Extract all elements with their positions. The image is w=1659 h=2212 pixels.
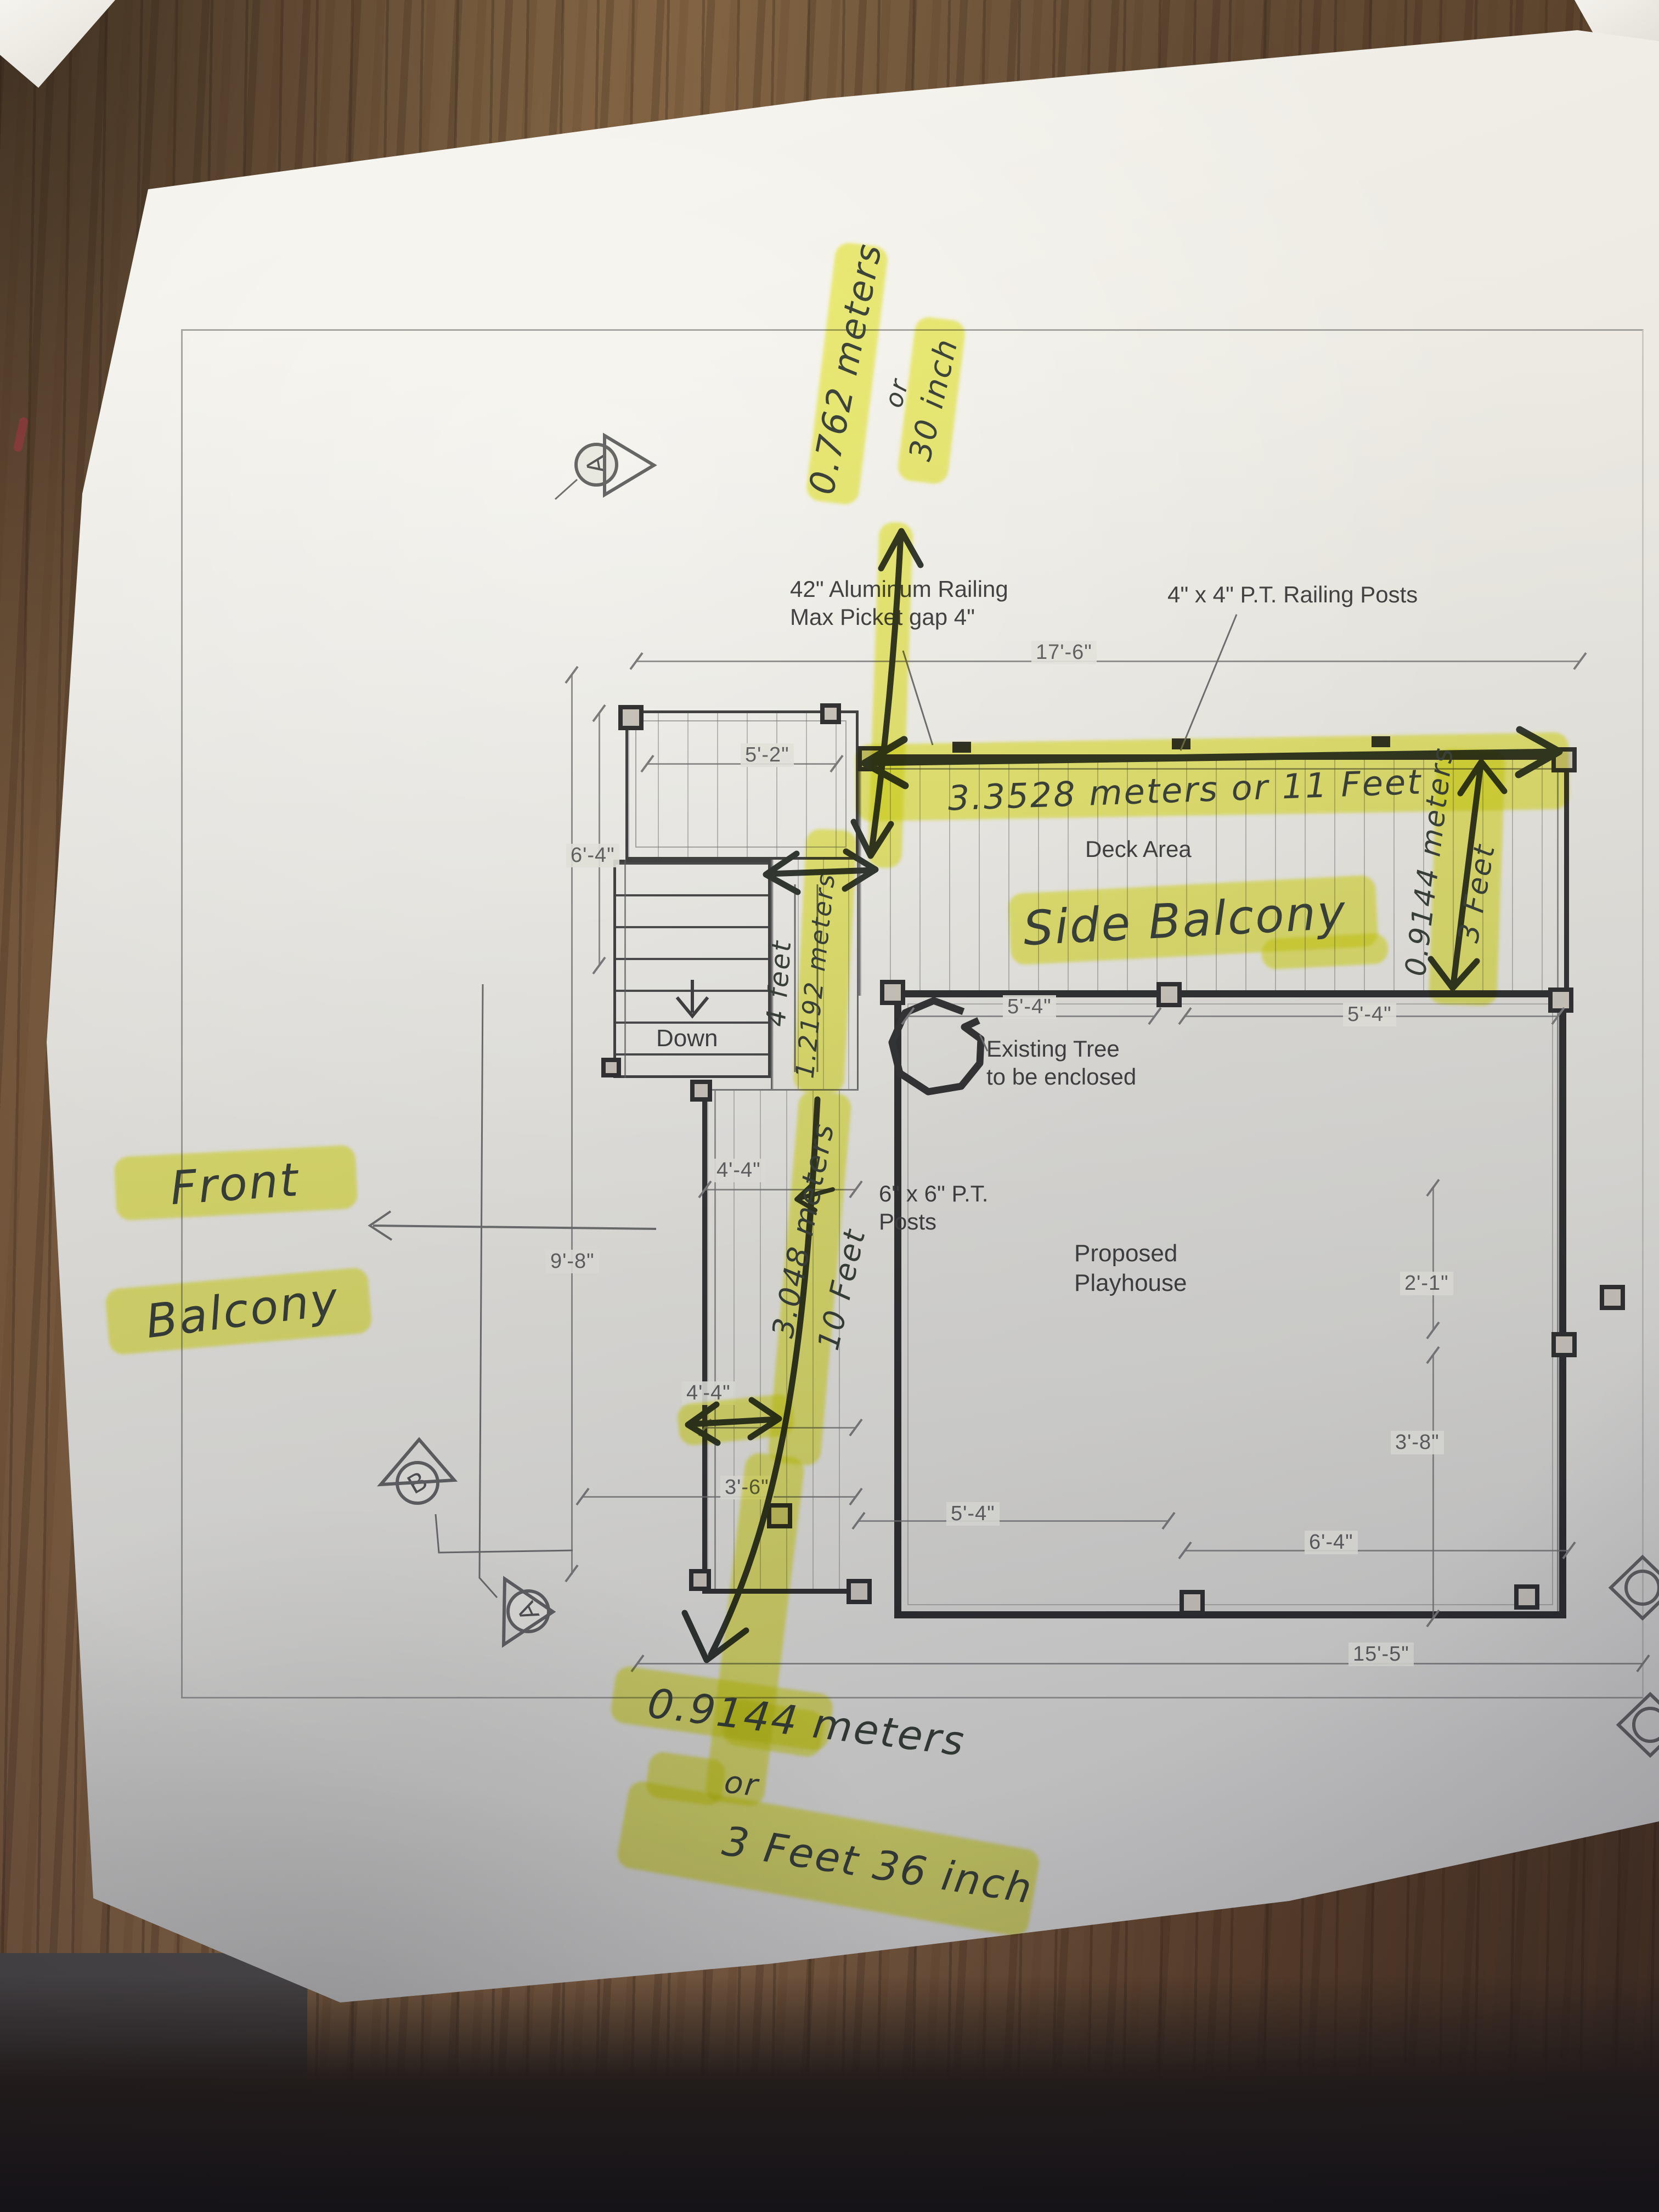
- existing-tree-outline: [892, 1001, 981, 1092]
- section-marker-triangles: [381, 436, 1659, 1756]
- hw-landing-imperial: 4 feet: [761, 939, 798, 1028]
- photo-of-deck-plan: 17'-6" 5'-2" 6'-4" 9'-8" 5'-4" 5'-4" 4'-…: [0, 0, 1659, 2212]
- edge-marker-circle: [1634, 1708, 1659, 1741]
- edge-marker-diamond: [1618, 1694, 1659, 1756]
- edge-marker-diamond: [1611, 1557, 1659, 1618]
- hw-bottom-or: or: [723, 1764, 761, 1804]
- edge-marker-circle: [1626, 1571, 1659, 1604]
- hw-front-balcony-line1: Front: [168, 1153, 301, 1215]
